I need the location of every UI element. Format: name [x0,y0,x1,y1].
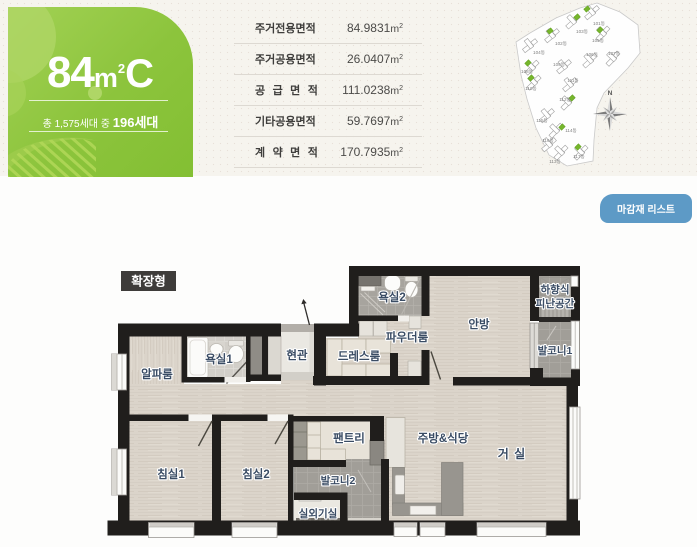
svg-text:발코니1: 발코니1 [538,344,573,357]
svg-text:욕실1: 욕실1 [205,352,233,366]
svg-text:실외기실: 실외기실 [299,507,338,520]
svg-text:주방&식당: 주방&식당 [418,431,469,445]
svg-text:거 실: 거 실 [498,446,526,461]
svg-text:드레스룸: 드레스룸 [338,349,381,363]
svg-text:발코니2: 발코니2 [321,474,356,487]
svg-text:침실1: 침실1 [157,467,185,481]
svg-text:안방: 안방 [468,317,490,331]
svg-text:파우더룸: 파우더룸 [386,330,429,344]
svg-text:욕실2: 욕실2 [378,290,406,304]
svg-text:피난공간: 피난공간 [536,297,575,310]
svg-text:현관: 현관 [286,348,308,362]
svg-text:침실2: 침실2 [242,467,270,481]
svg-text:알파룸: 알파룸 [141,367,173,381]
svg-text:하향식: 하향식 [541,283,570,296]
svg-text:확장형: 확장형 [131,274,166,289]
svg-text:팬트리: 팬트리 [333,431,365,445]
